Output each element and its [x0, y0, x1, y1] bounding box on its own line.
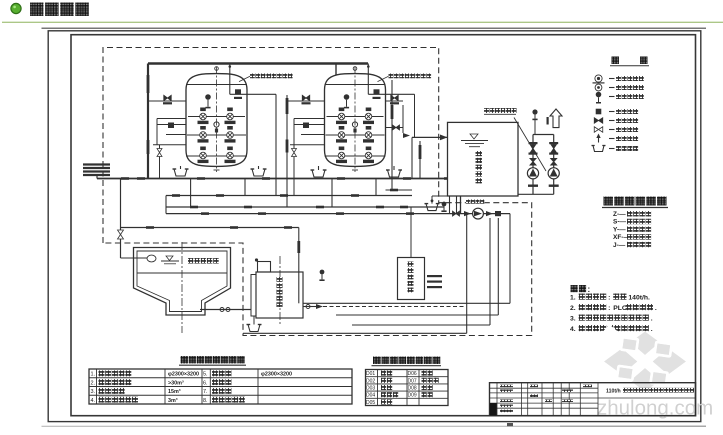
svg-text:φ2300×3200: φ2300×3200 [261, 372, 292, 378]
svg-text:S-—: S-— [613, 219, 627, 226]
svg-text:140t/h.: 140t/h. [628, 295, 650, 302]
svg-text:3.: 3. [570, 316, 576, 323]
svg-text:5.: 5. [203, 372, 208, 378]
svg-text:D08: D08 [408, 386, 417, 392]
svg-text:D04: D04 [366, 393, 375, 399]
svg-text:J-—: J-— [613, 242, 626, 249]
svg-text:15m³: 15m³ [168, 389, 181, 395]
svg-text:1.: 1. [91, 372, 96, 378]
svg-text:.: . [655, 305, 657, 312]
svg-text:3.: 3. [91, 389, 96, 395]
svg-text:D02: D02 [366, 378, 375, 384]
svg-text:1.: 1. [570, 295, 576, 302]
svg-text:D06: D06 [408, 371, 417, 377]
svg-text:>30m³: >30m³ [168, 380, 184, 386]
svg-text:8.: 8. [203, 398, 208, 404]
svg-text:6.: 6. [203, 380, 208, 386]
svg-text:D03: D03 [366, 386, 375, 392]
svg-text:D07: D07 [408, 378, 417, 384]
svg-text:D01: D01 [366, 371, 375, 377]
svg-text:2.: 2. [570, 305, 576, 312]
svg-text::: : [608, 305, 610, 312]
svg-text::: : [588, 285, 591, 294]
svg-text:.: . [651, 316, 653, 323]
svg-text:Y-—: Y-— [613, 226, 626, 233]
svg-text:4.: 4. [570, 326, 576, 333]
svg-text::: : [608, 295, 610, 302]
svg-text:D09: D09 [408, 393, 417, 399]
svg-text:Z-—: Z-— [613, 211, 626, 218]
svg-text:4.: 4. [91, 398, 96, 404]
svg-text:2.: 2. [91, 380, 96, 386]
svg-text:PLC: PLC [613, 305, 627, 312]
svg-text:110t/h: 110t/h [606, 389, 621, 395]
svg-text:7.: 7. [203, 389, 208, 395]
svg-text:φ2300×3200: φ2300×3200 [168, 372, 199, 378]
svg-text:3m³: 3m³ [168, 398, 178, 404]
svg-text:.: . [651, 326, 653, 333]
svg-text:D05: D05 [366, 400, 375, 406]
